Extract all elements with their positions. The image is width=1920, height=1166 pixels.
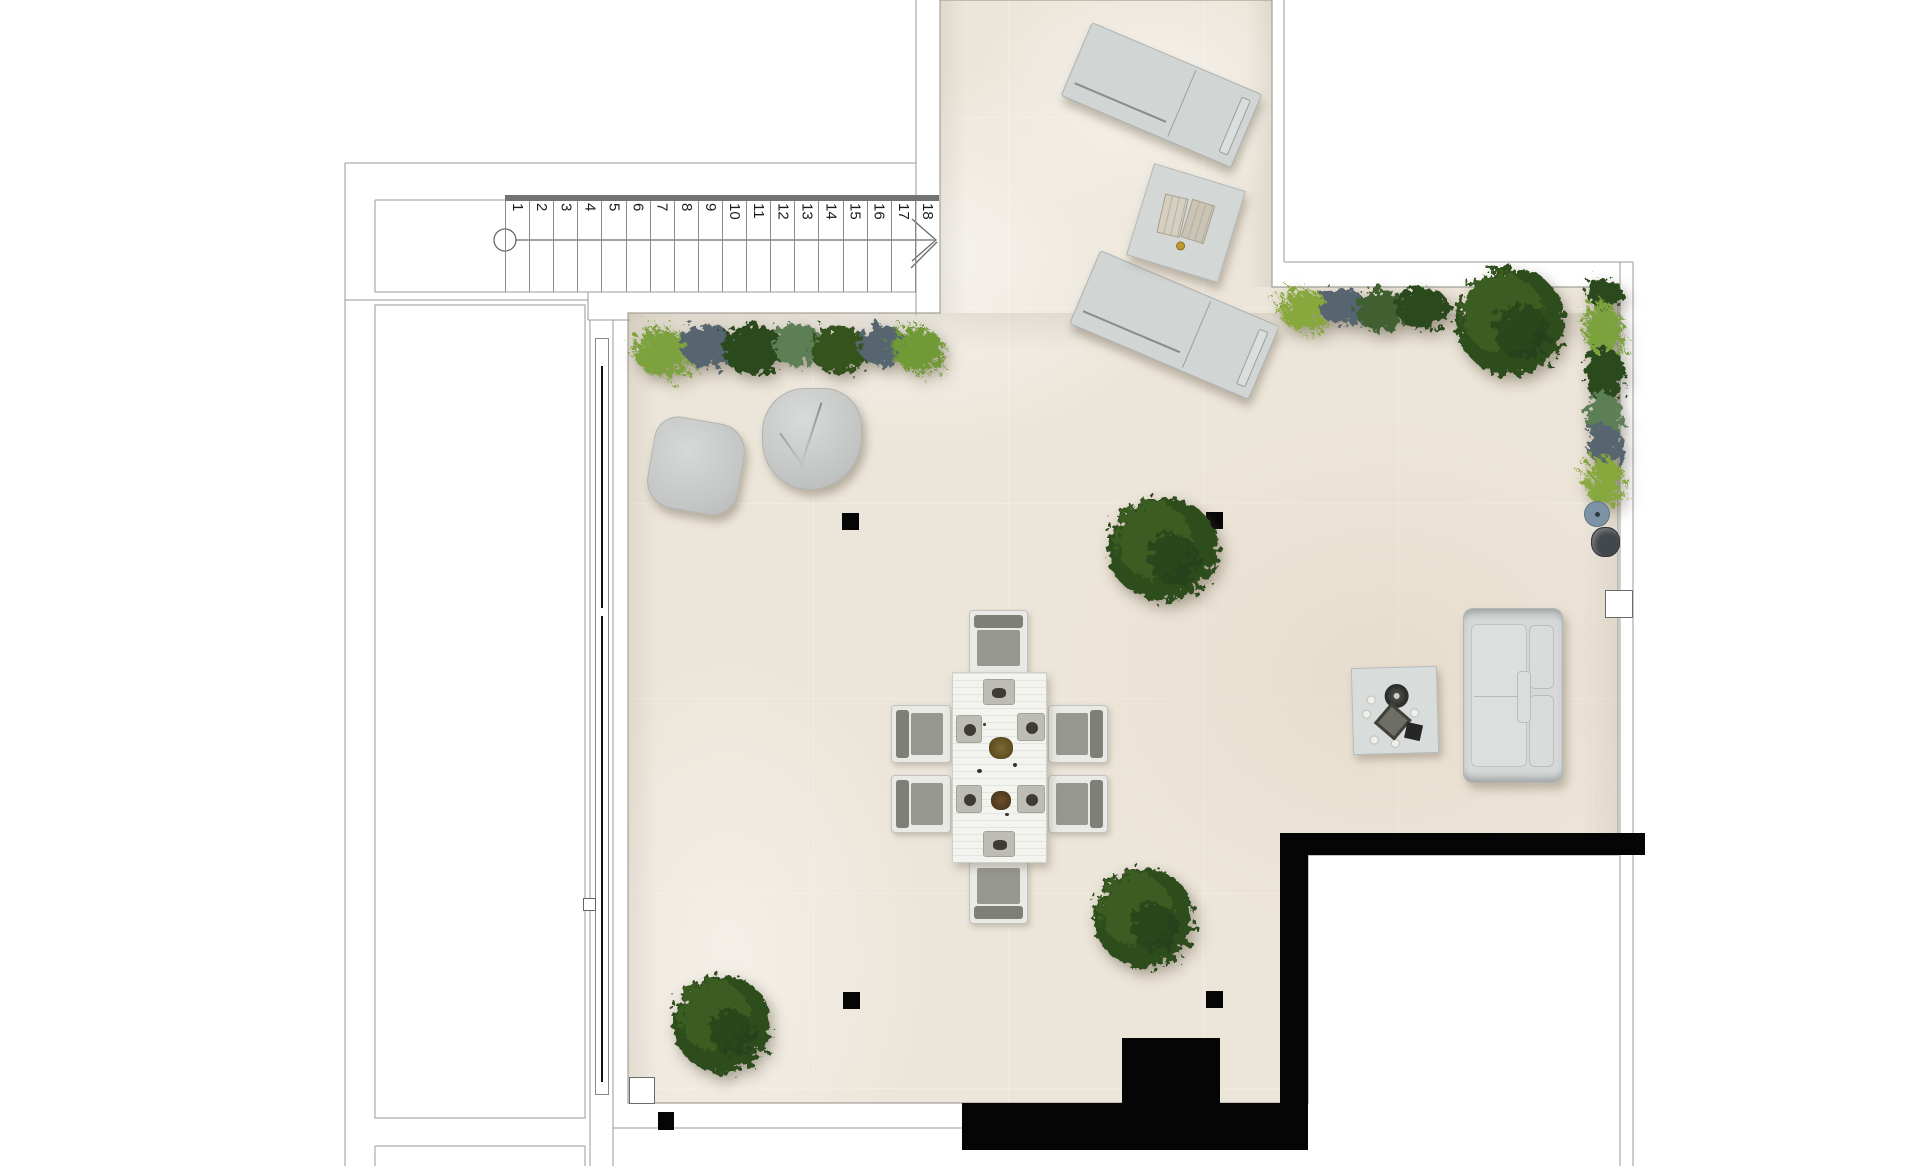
- wall-shadow-extension-right: [1246, 0, 1272, 287]
- stair-number: 11: [751, 203, 766, 219]
- stair-number: 1: [510, 203, 525, 211]
- dining-chair-bottom: [969, 860, 1028, 924]
- place-setting: [983, 679, 1015, 705]
- bush-bottom-left: [668, 971, 778, 1081]
- stair-tread: 5: [602, 201, 626, 292]
- dining-chair-top: [969, 610, 1028, 674]
- floor-plan: 123456789101112131415161718: [0, 0, 1920, 1166]
- stair-tread: 17: [892, 201, 916, 292]
- stair-tread: 12: [771, 201, 795, 292]
- stair-tread: 3: [554, 201, 578, 292]
- dining-chair-right-2: [1048, 775, 1108, 833]
- stair-number: 2: [534, 203, 549, 211]
- place-setting: [1017, 785, 1045, 813]
- stair-tread: 14: [819, 201, 843, 292]
- black-wall-vertical: [1280, 845, 1308, 1105]
- sliding-door-leaf: [601, 616, 603, 1082]
- black-wall-bottom: [962, 1103, 1308, 1150]
- stair-number: 7: [655, 203, 670, 211]
- stair-number: 3: [558, 203, 573, 211]
- column-marker: [843, 992, 860, 1009]
- stair-tread: 8: [675, 201, 699, 292]
- pot-dark: [1591, 527, 1620, 557]
- stair-number: 9: [703, 203, 718, 211]
- planter-right-wall: [1583, 279, 1625, 511]
- column-marker: [658, 1112, 674, 1130]
- stair-number: 8: [679, 203, 694, 211]
- niche-right-wall: [1605, 590, 1633, 618]
- stair-number: 14: [823, 203, 838, 220]
- planter-top-left: [630, 312, 946, 388]
- bush-center: [1104, 493, 1226, 609]
- stair-tread: 7: [651, 201, 675, 292]
- coffee-table: [1351, 666, 1439, 755]
- place-setting: [956, 785, 982, 813]
- stair-tread: 6: [627, 201, 651, 292]
- stair-number: 5: [606, 203, 621, 211]
- stair-tread: 10: [723, 201, 747, 292]
- place-setting: [1017, 713, 1045, 741]
- niche-bottom-left: [629, 1077, 655, 1104]
- stair-number: 17: [896, 203, 911, 220]
- dining-chair-left-2: [891, 775, 951, 833]
- sliding-door-leaf: [601, 366, 603, 608]
- table-centerpiece: [989, 737, 1013, 759]
- dining-chair-right-1: [1048, 705, 1108, 763]
- dining-chair-left-1: [891, 705, 951, 763]
- stair-number: 16: [872, 203, 887, 220]
- stair-tread: 15: [844, 201, 868, 292]
- table-centerpiece: [991, 791, 1011, 810]
- stair-tread: 18: [916, 201, 939, 292]
- wall-shadow-left: [628, 313, 658, 1103]
- stair-number: 13: [799, 203, 814, 220]
- stair-number: 6: [631, 203, 646, 211]
- gold-dish: [1175, 240, 1186, 251]
- bush-bottom-center: [1088, 863, 1200, 975]
- stair-tread: 1: [506, 201, 530, 292]
- terrace-floor: [0, 0, 1920, 1166]
- column-marker: [842, 513, 859, 530]
- stair-number: 15: [848, 203, 863, 220]
- small-box: [1404, 722, 1423, 741]
- stair-number: 10: [727, 203, 742, 220]
- bean-bag-1: [643, 413, 750, 520]
- stair-number: 12: [775, 203, 790, 220]
- pot-blue: [1584, 501, 1610, 527]
- staircase-treads: 123456789101112131415161718: [505, 201, 939, 292]
- stair-tread: 11: [747, 201, 771, 292]
- stair-tread: 16: [868, 201, 892, 292]
- stair-tread: 2: [530, 201, 554, 292]
- sofa: [1463, 608, 1563, 783]
- stair-number: 4: [582, 203, 597, 211]
- stair-tread: 13: [795, 201, 819, 292]
- bush-top-right: [1448, 258, 1578, 388]
- wall-shadow-extension-left: [940, 0, 966, 313]
- black-wall-protrusion: [1122, 1038, 1220, 1104]
- place-setting: [983, 831, 1015, 857]
- place-setting: [956, 715, 982, 743]
- stair-number: 18: [920, 203, 935, 220]
- door-handle: [583, 898, 596, 911]
- dining-table: [952, 672, 1047, 863]
- planter-top-right: [1281, 284, 1459, 336]
- black-wall-horizontal: [1280, 833, 1645, 855]
- stair-tread: 9: [699, 201, 723, 292]
- column-marker: [1206, 991, 1223, 1008]
- stair-tread: 4: [578, 201, 602, 292]
